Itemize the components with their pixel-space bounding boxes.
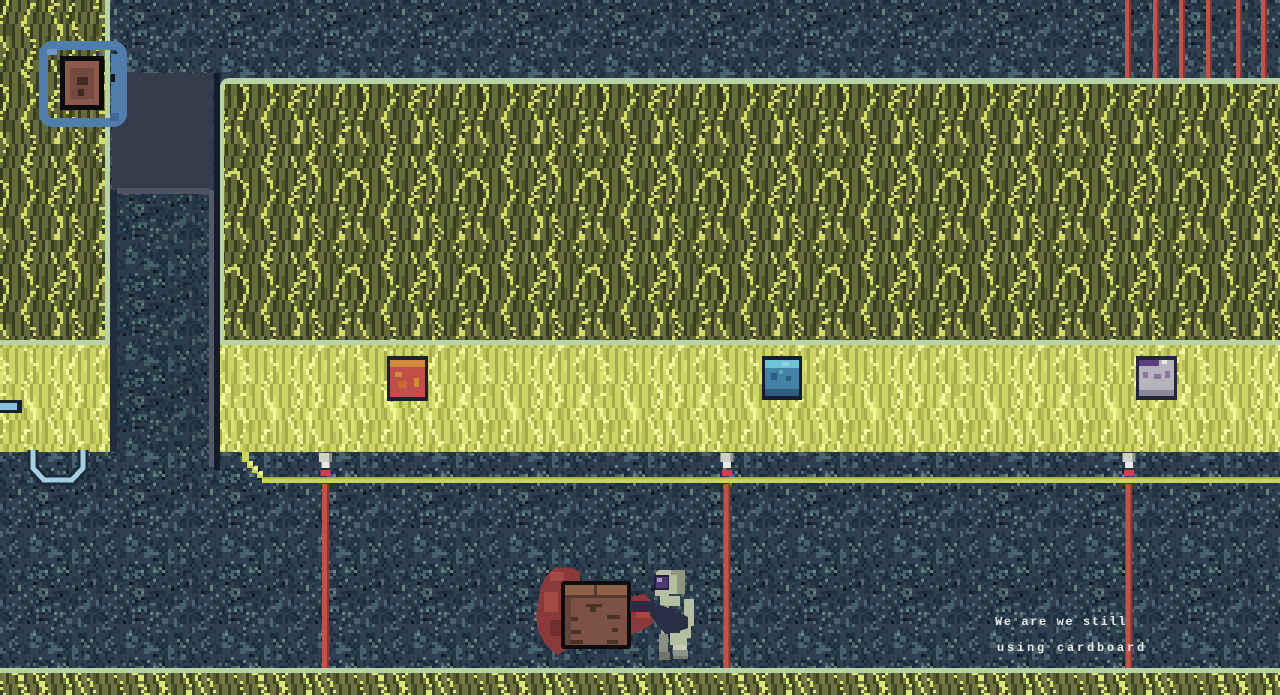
svg-text:using cardboard: using cardboard xyxy=(997,641,1147,655)
svg-text:We are we still: We are we still xyxy=(995,615,1127,629)
